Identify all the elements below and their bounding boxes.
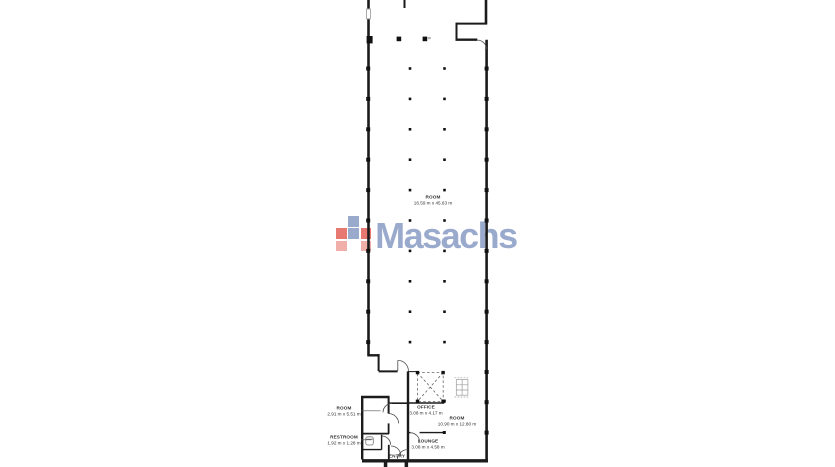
- floorplan-canvas: Masachs: [0, 0, 835, 467]
- column-top-2: [423, 37, 428, 42]
- label-leaders: [361, 411, 381, 440]
- fixtures: [366, 9, 489, 467]
- column-wall-top: [367, 36, 373, 43]
- column-grid: [366, 67, 488, 345]
- door-corridor: [383, 403, 392, 412]
- door-mainroom: [398, 360, 409, 371]
- walls: [361, 0, 488, 461]
- gray-mark: [428, 37, 431, 39]
- floorplan-drawing: [0, 0, 835, 467]
- window-top-left: [367, 9, 371, 19]
- door-room-left: [389, 414, 399, 424]
- door-entry-right: [397, 450, 407, 460]
- stairs-fixture: [455, 378, 470, 397]
- column-top-1: [397, 37, 402, 42]
- wall-stub-1: [384, 462, 388, 467]
- door-lounge: [410, 433, 419, 442]
- doors: [382, 40, 487, 460]
- door-top-right: [477, 40, 486, 49]
- wall-stub-2: [405, 462, 409, 467]
- skylight-dashed-box: [417, 373, 443, 402]
- door-restroom: [382, 436, 391, 445]
- toilet-icon: [366, 437, 374, 445]
